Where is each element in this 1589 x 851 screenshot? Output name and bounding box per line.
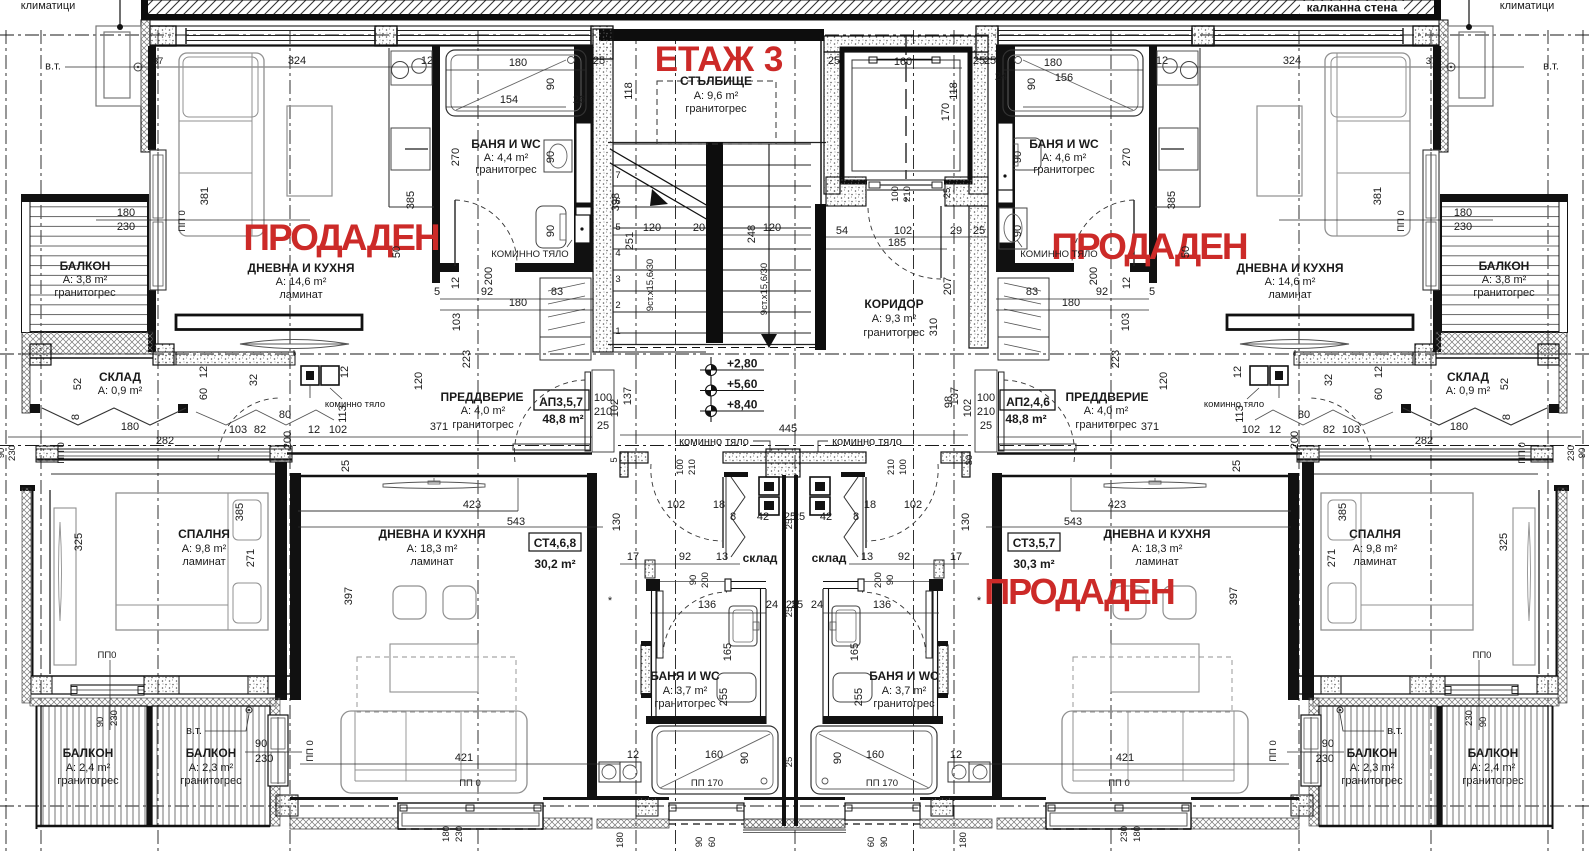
svg-text:A: 14,6 m²: A: 14,6 m² — [276, 276, 327, 288]
svg-text:251: 251 — [624, 232, 636, 250]
svg-text:климатици: климатици — [1500, 0, 1555, 12]
svg-text:гранитогрес: гранитогрес — [57, 775, 119, 787]
svg-text:13: 13 — [861, 551, 873, 563]
svg-text:20: 20 — [693, 222, 705, 234]
svg-text:137: 137 — [622, 387, 634, 405]
svg-text:A: 9,8 m²: A: 9,8 m² — [182, 543, 227, 555]
svg-text:423: 423 — [1108, 499, 1126, 511]
svg-text:90: 90 — [545, 225, 557, 237]
svg-text:207: 207 — [942, 277, 954, 295]
svg-text:90: 90 — [1478, 717, 1489, 728]
svg-text:ПП0: ПП0 — [98, 650, 117, 661]
svg-text:ламинат: ламинат — [1268, 289, 1311, 301]
svg-text:БАЛКОН: БАЛКОН — [60, 259, 111, 273]
svg-text:270: 270 — [1121, 148, 1133, 166]
svg-text:БАЛКОН: БАЛКОН — [1479, 259, 1530, 273]
svg-text:гранитогрес: гранитогрес — [54, 287, 116, 299]
svg-text:29: 29 — [950, 225, 962, 237]
svg-text:8: 8 — [70, 414, 82, 420]
svg-text:СПАЛНЯ: СПАЛНЯ — [1349, 527, 1401, 541]
svg-text:421: 421 — [1116, 752, 1134, 764]
svg-text:БАЛКОН: БАЛКОН — [186, 746, 237, 760]
svg-text:52: 52 — [72, 378, 84, 390]
svg-text:118: 118 — [948, 82, 960, 100]
svg-text:180: 180 — [441, 826, 452, 842]
svg-text:180: 180 — [615, 832, 626, 848]
svg-text:*: * — [977, 595, 982, 607]
svg-text:136: 136 — [873, 599, 891, 611]
svg-text:130: 130 — [611, 513, 623, 531]
svg-text:25: 25 — [597, 420, 609, 432]
svg-text:82: 82 — [1323, 424, 1335, 436]
svg-text:165: 165 — [849, 643, 861, 661]
svg-text:+8,40: +8,40 — [727, 398, 758, 412]
svg-text:230: 230 — [7, 445, 18, 461]
svg-text:ПП 170: ПП 170 — [691, 778, 723, 789]
svg-text:в.т.: в.т. — [1543, 61, 1559, 73]
svg-text:калканна стена: калканна стена — [1307, 1, 1398, 15]
svg-text:154: 154 — [500, 94, 518, 106]
svg-text:гранитогрес: гранитогрес — [1462, 775, 1524, 787]
svg-text:7: 7 — [615, 170, 620, 181]
svg-text:склад: склад — [743, 551, 778, 565]
svg-text:120: 120 — [763, 222, 781, 234]
svg-text:90: 90 — [879, 837, 890, 848]
svg-text:48,8 m²: 48,8 m² — [1005, 412, 1046, 426]
svg-text:92: 92 — [679, 551, 691, 563]
svg-text:130: 130 — [960, 513, 972, 531]
svg-text:гранитогрес: гранитогрес — [475, 164, 537, 176]
svg-text:90: 90 — [694, 837, 705, 848]
svg-text:12: 12 — [1232, 366, 1244, 378]
svg-text:83: 83 — [551, 286, 563, 298]
svg-text:A: 3,8 m²: A: 3,8 m² — [1482, 274, 1527, 286]
svg-text:БАНЯ И WC: БАНЯ И WC — [650, 669, 720, 683]
svg-text:230: 230 — [1316, 753, 1334, 765]
svg-text:24: 24 — [811, 599, 823, 611]
svg-text:8: 8 — [1501, 414, 1513, 420]
svg-text:60: 60 — [198, 388, 210, 400]
svg-text:180: 180 — [117, 207, 135, 219]
svg-text:223: 223 — [461, 350, 473, 368]
svg-text:24: 24 — [766, 599, 778, 611]
svg-text:60: 60 — [707, 837, 718, 848]
svg-text:180: 180 — [1132, 826, 1143, 842]
svg-text:325: 325 — [73, 533, 85, 551]
svg-text:ламинат: ламинат — [279, 289, 322, 301]
svg-text:ПРЕДДВЕРИЕ: ПРЕДДВЕРИЕ — [1065, 390, 1148, 404]
svg-text:102: 102 — [894, 225, 912, 237]
svg-text:324: 324 — [1283, 55, 1301, 67]
svg-text:в.т.: в.т. — [1387, 725, 1403, 737]
svg-text:103: 103 — [451, 313, 463, 331]
svg-text:12: 12 — [1269, 424, 1281, 436]
svg-text:25: 25 — [828, 55, 840, 67]
svg-text:230: 230 — [454, 826, 465, 842]
svg-text:90: 90 — [832, 752, 844, 764]
svg-text:12: 12 — [450, 277, 462, 289]
svg-text:ПП 0: ПП 0 — [1108, 778, 1130, 789]
svg-text:A: 3,7 m²: A: 3,7 m² — [663, 685, 708, 697]
svg-text:50: 50 — [1180, 246, 1192, 258]
svg-text:5: 5 — [1149, 286, 1155, 298]
svg-text:230: 230 — [1454, 221, 1472, 233]
svg-text:113: 113 — [337, 405, 349, 423]
svg-text:52: 52 — [1499, 378, 1511, 390]
svg-text:118: 118 — [623, 82, 635, 100]
svg-text:210: 210 — [886, 459, 897, 475]
svg-text:18: 18 — [713, 499, 725, 511]
svg-text:543: 543 — [507, 516, 525, 528]
svg-text:103: 103 — [1342, 424, 1360, 436]
svg-text:165: 165 — [722, 643, 734, 661]
svg-text:в.т.: в.т. — [186, 725, 202, 737]
svg-text:ПРОДАДЕН: ПРОДАДЕН — [243, 217, 439, 258]
svg-text:270: 270 — [450, 148, 462, 166]
svg-text:25: 25 — [1231, 460, 1243, 472]
svg-text:A: 14,6 m²: A: 14,6 m² — [1265, 276, 1316, 288]
svg-text:92: 92 — [481, 286, 493, 298]
svg-text:445: 445 — [779, 423, 797, 435]
svg-text:ПРОДАДЕН: ПРОДАДЕН — [984, 571, 1174, 612]
svg-text:156: 156 — [1055, 72, 1073, 84]
svg-text:A: 4,4 m²: A: 4,4 m² — [484, 152, 529, 164]
svg-text:A: 9,8 m²: A: 9,8 m² — [1353, 543, 1398, 555]
svg-text:230: 230 — [109, 710, 120, 726]
svg-text:136: 136 — [698, 599, 716, 611]
svg-text:230: 230 — [1566, 445, 1577, 461]
svg-text:АП2,4,6: АП2,4,6 — [1006, 395, 1050, 409]
svg-text:90: 90 — [1012, 151, 1024, 163]
svg-text:5: 5 — [434, 286, 440, 298]
svg-text:A: 2,4 m²: A: 2,4 m² — [1471, 762, 1516, 774]
svg-text:90: 90 — [95, 717, 106, 728]
svg-text:102: 102 — [609, 399, 621, 417]
svg-text:гранитогрес: гранитогрес — [452, 419, 514, 431]
svg-text:+2,80: +2,80 — [727, 357, 758, 371]
svg-text:24: 24 — [995, 71, 1007, 83]
svg-text:180: 180 — [121, 421, 139, 433]
svg-text:100: 100 — [890, 186, 901, 202]
svg-text:200: 200 — [700, 572, 711, 588]
svg-text:*: * — [608, 595, 613, 607]
svg-text:A: 18,3 m²: A: 18,3 m² — [1132, 543, 1183, 555]
svg-text:100: 100 — [898, 459, 909, 475]
svg-text:12: 12 — [950, 749, 962, 761]
svg-text:ПП 0: ПП 0 — [1268, 740, 1279, 762]
svg-text:102: 102 — [329, 424, 347, 436]
svg-text:90: 90 — [1012, 225, 1024, 237]
svg-text:+5,60: +5,60 — [727, 377, 758, 391]
svg-text:A: 3,8 m²: A: 3,8 m² — [63, 274, 108, 286]
svg-text:СКЛАД: СКЛАД — [1447, 370, 1490, 384]
svg-text:324: 324 — [288, 55, 306, 67]
svg-text:ламинат: ламинат — [410, 556, 453, 568]
svg-text:120: 120 — [413, 372, 425, 390]
svg-text:92: 92 — [1096, 286, 1108, 298]
svg-text:423: 423 — [463, 499, 481, 511]
svg-text:120: 120 — [643, 222, 661, 234]
svg-text:50: 50 — [391, 246, 403, 258]
svg-text:103: 103 — [229, 424, 247, 436]
svg-text:92: 92 — [898, 551, 910, 563]
svg-text:100: 100 — [675, 459, 686, 475]
svg-text:3: 3 — [615, 274, 620, 285]
svg-text:17: 17 — [627, 551, 639, 563]
svg-text:102: 102 — [904, 499, 922, 511]
svg-text:СТ3,5,7: СТ3,5,7 — [1013, 536, 1056, 550]
svg-text:200: 200 — [483, 267, 495, 285]
svg-text:310: 310 — [928, 318, 940, 336]
svg-text:90: 90 — [0, 448, 7, 459]
svg-text:98: 98 — [943, 396, 955, 408]
svg-text:160: 160 — [894, 56, 912, 68]
svg-text:КОРИДОР: КОРИДОР — [864, 297, 923, 311]
svg-text:ДНЕВНА И КУХНЯ: ДНЕВНА И КУХНЯ — [379, 527, 486, 541]
svg-text:A: 2,4 m²: A: 2,4 m² — [66, 762, 111, 774]
svg-text:80: 80 — [279, 409, 291, 421]
svg-text:ПП 0: ПП 0 — [177, 210, 188, 232]
svg-text:25: 25 — [784, 607, 795, 618]
svg-text:СТ4,6,8: СТ4,6,8 — [534, 536, 577, 550]
svg-text:271: 271 — [1326, 549, 1338, 567]
svg-text:180: 180 — [958, 832, 969, 848]
svg-text:170: 170 — [940, 103, 952, 121]
svg-text:102: 102 — [667, 499, 685, 511]
svg-text:12: 12 — [339, 366, 351, 378]
svg-text:БАНЯ И WC: БАНЯ И WC — [1029, 137, 1099, 151]
svg-text:230: 230 — [1119, 826, 1130, 842]
svg-text:100: 100 — [977, 392, 995, 404]
svg-text:210: 210 — [687, 459, 698, 475]
svg-text:185: 185 — [888, 237, 906, 249]
svg-text:ламинат: ламинат — [1353, 556, 1396, 568]
svg-text:25: 25 — [980, 420, 992, 432]
svg-text:25: 25 — [973, 55, 985, 67]
svg-text:ПП 0: ПП 0 — [1517, 442, 1528, 464]
svg-text:12: 12 — [308, 424, 320, 436]
svg-text:ПРОДАДЕН: ПРОДАДЕН — [1051, 226, 1247, 267]
svg-text:385: 385 — [1166, 191, 1178, 209]
svg-text:ПРЕДДВЕРИЕ: ПРЕДДВЕРИЕ — [440, 390, 523, 404]
svg-text:90: 90 — [545, 151, 557, 163]
svg-text:склад: склад — [812, 551, 847, 565]
svg-text:30,2 m²: 30,2 m² — [534, 557, 575, 571]
svg-text:90: 90 — [688, 575, 699, 586]
svg-text:коминно тяло: коминно тяло — [832, 436, 902, 448]
svg-text:A: 2,3 m²: A: 2,3 m² — [189, 762, 234, 774]
svg-text:АП3,5,7: АП3,5,7 — [539, 395, 583, 409]
svg-text:30,3 m²: 30,3 m² — [1013, 557, 1054, 571]
svg-text:82: 82 — [254, 424, 266, 436]
svg-text:ламинат: ламинат — [182, 556, 225, 568]
svg-text:398: 398 — [610, 193, 622, 211]
svg-text:БАЛКОН: БАЛКОН — [1468, 746, 1519, 760]
svg-text:271: 271 — [245, 549, 257, 567]
svg-text:30: 30 — [964, 455, 975, 466]
svg-text:543: 543 — [1064, 516, 1082, 528]
svg-text:90: 90 — [1322, 738, 1334, 750]
svg-text:42: 42 — [820, 511, 832, 523]
svg-text:223: 223 — [1110, 350, 1122, 368]
svg-text:90: 90 — [1026, 78, 1038, 90]
svg-text:гранитогрес: гранитогрес — [1341, 775, 1403, 787]
svg-text:A: 2,3 m²: A: 2,3 m² — [1350, 762, 1395, 774]
svg-text:13: 13 — [716, 551, 728, 563]
svg-text:25: 25 — [942, 188, 953, 199]
svg-text:325: 325 — [1498, 533, 1510, 551]
svg-text:12: 12 — [198, 366, 210, 378]
svg-text:102: 102 — [962, 399, 974, 417]
svg-text:ЕТАЖ 3: ЕТАЖ 3 — [655, 40, 784, 79]
svg-text:90: 90 — [739, 752, 751, 764]
svg-text:385: 385 — [405, 191, 417, 209]
svg-text:60: 60 — [1373, 388, 1385, 400]
svg-text:СПАЛНЯ: СПАЛНЯ — [178, 527, 230, 541]
svg-text:25: 25 — [973, 225, 985, 237]
svg-text:32: 32 — [248, 374, 260, 386]
svg-text:гранитогрес: гранитогрес — [654, 698, 716, 710]
svg-text:12: 12 — [421, 55, 433, 67]
svg-text:гранитогрес: гранитогрес — [1033, 164, 1095, 176]
svg-text:9ст.х15,6/30: 9ст.х15,6/30 — [645, 259, 656, 311]
svg-text:гранитогрес: гранитогрес — [180, 775, 242, 787]
svg-text:8: 8 — [730, 511, 736, 523]
svg-text:гранитогрес: гранитогрес — [873, 698, 935, 710]
svg-text:5: 5 — [615, 222, 620, 233]
svg-text:12: 12 — [1156, 55, 1168, 67]
svg-text:ПП 0: ПП 0 — [459, 778, 481, 789]
svg-text:A: 4,0 m²: A: 4,0 m² — [461, 405, 506, 417]
svg-text:371: 371 — [430, 421, 448, 433]
svg-text:2: 2 — [615, 300, 620, 311]
svg-text:9ст.х15,6/30: 9ст.х15,6/30 — [759, 263, 770, 315]
svg-text:БАНЯ И WC: БАНЯ И WC — [471, 137, 541, 151]
svg-text:12: 12 — [1121, 277, 1133, 289]
svg-text:160: 160 — [866, 749, 884, 761]
svg-text:90: 90 — [255, 738, 267, 750]
svg-text:26: 26 — [573, 94, 585, 106]
svg-text:200: 200 — [1088, 267, 1100, 285]
svg-text:коминно тяло: коминно тяло — [679, 436, 749, 448]
svg-text:18: 18 — [864, 499, 876, 511]
svg-text:1: 1 — [615, 326, 620, 337]
svg-text:12: 12 — [1373, 366, 1385, 378]
svg-text:ПП0: ПП0 — [1473, 650, 1492, 661]
svg-text:КОМИННО ТЯЛО: КОМИННО ТЯЛО — [1020, 249, 1097, 260]
svg-text:180: 180 — [1450, 421, 1468, 433]
svg-text:37: 37 — [153, 56, 164, 67]
svg-text:гранитогрес: гранитогрес — [1473, 287, 1535, 299]
svg-text:25: 25 — [784, 757, 795, 768]
svg-text:КОМИННО ТЯЛО: КОМИННО ТЯЛО — [491, 249, 568, 260]
svg-text:А: 9,3 m²: А: 9,3 m² — [872, 313, 917, 325]
svg-text:397: 397 — [1228, 587, 1240, 605]
svg-text:48,8 m²: 48,8 m² — [542, 412, 583, 426]
svg-text:60: 60 — [866, 837, 877, 848]
svg-text:37: 37 — [1426, 56, 1437, 67]
svg-text:A: 3,7 m²: A: 3,7 m² — [882, 685, 927, 697]
svg-text:385: 385 — [234, 503, 246, 521]
svg-text:ПП 0: ПП 0 — [305, 740, 316, 762]
svg-text:ДНЕВНА И КУХНЯ: ДНЕВНА И КУХНЯ — [1104, 527, 1211, 541]
svg-text:ПП 0: ПП 0 — [56, 442, 67, 464]
svg-text:БАНЯ И WC: БАНЯ И WC — [869, 669, 939, 683]
svg-text:210: 210 — [977, 406, 995, 418]
svg-text:гранитогрес: гранитогрес — [1075, 419, 1137, 431]
svg-text:113: 113 — [1234, 405, 1246, 423]
svg-text:421: 421 — [455, 752, 473, 764]
svg-text:A: 4,0 m²: A: 4,0 m² — [1084, 405, 1129, 417]
svg-text:160: 160 — [705, 749, 723, 761]
svg-text:230: 230 — [255, 753, 273, 765]
svg-text:A: 0,9 m²: A: 0,9 m² — [98, 385, 143, 397]
svg-text:180: 180 — [509, 57, 527, 69]
svg-text:385: 385 — [1337, 503, 1349, 521]
svg-text:климатици: климатици — [21, 0, 76, 12]
svg-text:42: 42 — [757, 511, 769, 523]
svg-text:54: 54 — [836, 225, 848, 237]
svg-text:гранитогрес: гранитогрес — [863, 327, 925, 339]
svg-text:в.т.: в.т. — [45, 61, 61, 73]
svg-text:12: 12 — [627, 749, 639, 761]
svg-text:гранитогрес: гранитогрес — [685, 103, 747, 115]
svg-text:83: 83 — [1026, 286, 1038, 298]
svg-text:90: 90 — [885, 575, 896, 586]
svg-text:397: 397 — [343, 587, 355, 605]
svg-text:БАЛКОН: БАЛКОН — [63, 746, 114, 760]
svg-text:90: 90 — [545, 78, 557, 90]
svg-text:ДНЕВНА И КУХНЯ: ДНЕВНА И КУХНЯ — [1237, 261, 1344, 275]
svg-text:ламинат: ламинат — [1135, 556, 1178, 568]
svg-text:90: 90 — [1577, 448, 1588, 459]
svg-text:ДНЕВНА И КУХНЯ: ДНЕВНА И КУХНЯ — [248, 261, 355, 275]
svg-text:80: 80 — [1298, 409, 1310, 421]
svg-text:A: 4,6 m²: A: 4,6 m² — [1042, 152, 1087, 164]
svg-text:248: 248 — [746, 225, 758, 243]
svg-text:102: 102 — [1242, 424, 1260, 436]
svg-text:210: 210 — [902, 186, 913, 202]
svg-text:381: 381 — [199, 187, 211, 205]
svg-text:17: 17 — [950, 551, 962, 563]
svg-text:СКЛАД: СКЛАД — [99, 370, 142, 384]
svg-text:230: 230 — [117, 221, 135, 233]
svg-text:371: 371 — [1141, 421, 1159, 433]
svg-text:БАЛКОН: БАЛКОН — [1347, 746, 1398, 760]
svg-text:180: 180 — [1044, 57, 1062, 69]
svg-text:4: 4 — [615, 248, 620, 259]
svg-text:25: 25 — [784, 519, 795, 530]
svg-text:A: 18,3 m²: A: 18,3 m² — [407, 543, 458, 555]
svg-text:А: 9,6 m²: А: 9,6 m² — [694, 90, 739, 102]
svg-text:180: 180 — [1454, 207, 1472, 219]
svg-text:25: 25 — [340, 460, 352, 472]
svg-text:32: 32 — [1323, 374, 1335, 386]
svg-text:200: 200 — [873, 572, 884, 588]
svg-text:103: 103 — [1120, 313, 1132, 331]
svg-text:255: 255 — [853, 688, 865, 706]
svg-text:255: 255 — [718, 688, 730, 706]
svg-text:5: 5 — [609, 457, 620, 462]
svg-text:230: 230 — [1464, 710, 1475, 726]
svg-text:ПП 0: ПП 0 — [1396, 210, 1407, 232]
svg-text:8: 8 — [853, 511, 859, 523]
svg-text:коминно тяло: коминно тяло — [325, 399, 385, 410]
svg-text:ПП 170: ПП 170 — [866, 778, 898, 789]
svg-text:A: 0,9 m²: A: 0,9 m² — [1446, 385, 1491, 397]
svg-text:381: 381 — [1372, 187, 1384, 205]
svg-text:120: 120 — [1158, 372, 1170, 390]
